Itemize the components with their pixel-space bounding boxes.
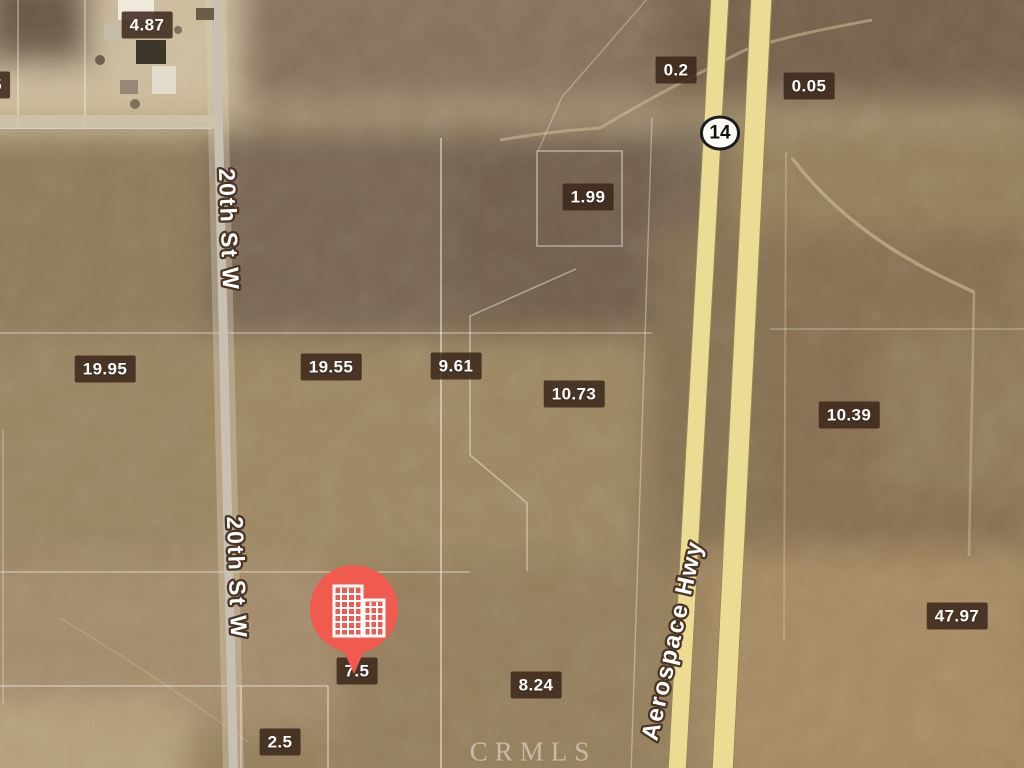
parcel-acreage-label: 0.05 [784,73,835,100]
parcel-acreage-label: 0.2 [656,57,697,84]
parcel-acreage-label: 4.87 [122,12,173,39]
route-number: 14 [709,124,730,143]
crmls-watermark: CRMLS [470,737,597,768]
parcel-acreage-label: 8.24 [511,672,562,699]
location-marker[interactable] [306,564,402,676]
dirt-road [0,115,216,128]
map-canvas[interactable]: 20th St W20th St WAerospace Hwy 4.8750.2… [0,0,1024,768]
parcel-acreage-label: 2.5 [260,729,301,756]
satellite-terrain: 20th St W20th St WAerospace Hwy [0,0,1024,768]
parcel-acreage-label: 19.55 [301,354,362,381]
parcel-acreage-label: 19.95 [75,356,136,383]
parcel-acreage-label: 47.97 [927,603,988,630]
parcel-acreage-label: 5 [0,72,10,99]
route-14-shield: 14 [700,116,740,151]
parcel-acreage-label: 9.61 [431,353,482,380]
parcel-acreage-label: 10.73 [544,381,605,408]
marker-graphic [306,564,402,676]
parcel-acreage-label: 1.99 [563,184,614,211]
parcel-acreage-label: 10.39 [819,402,880,429]
road-name-label: 20th St W [222,516,252,640]
road-name-label: 20th St W [214,168,244,292]
